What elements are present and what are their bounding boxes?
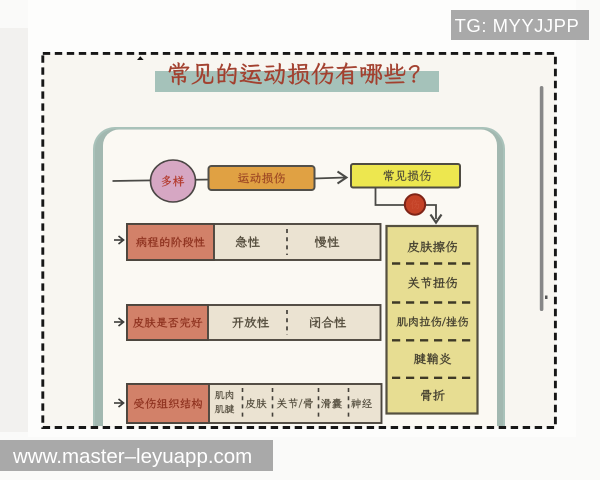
svg-text:TG: MYYJJPP: TG: MYYJJPP (455, 15, 580, 36)
svg-text:www.master–leyuapp.com: www.master–leyuapp.com (12, 445, 252, 468)
